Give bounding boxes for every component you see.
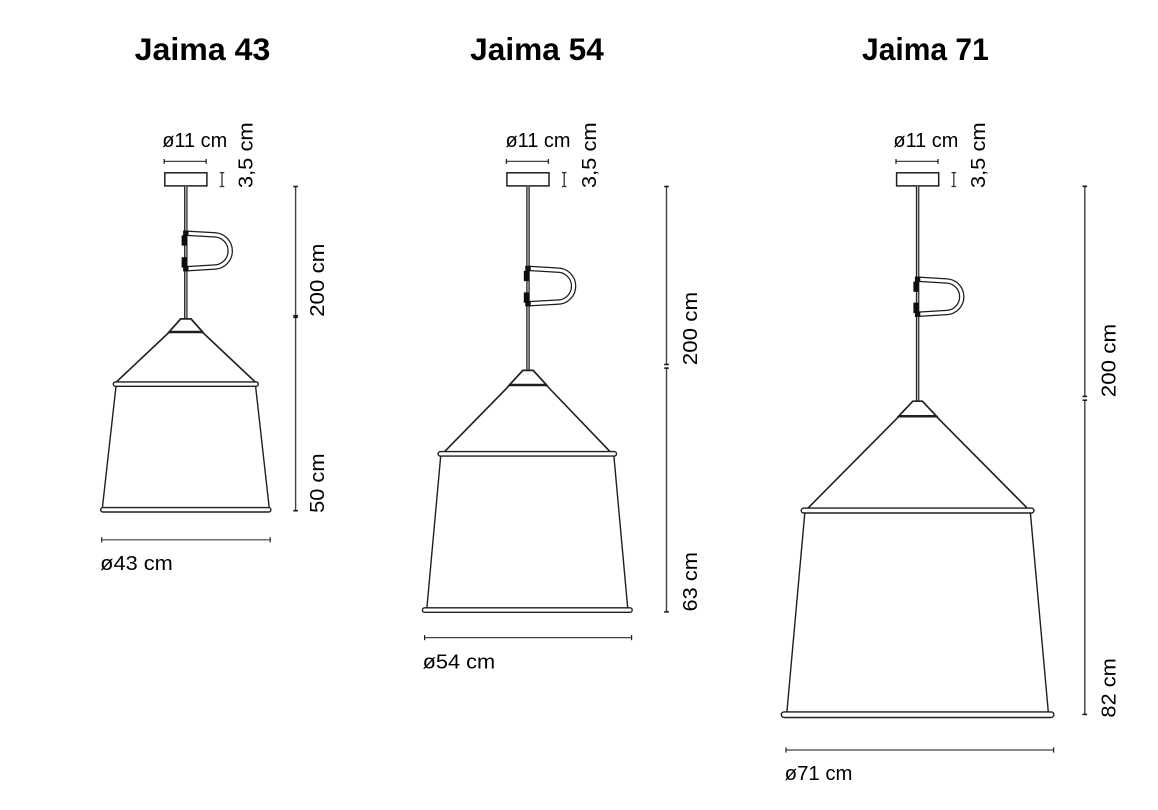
svg-text:82 cm: 82 cm [1098, 658, 1120, 717]
svg-text:3,5 cm: 3,5 cm [235, 122, 257, 188]
svg-text:ø43 cm: ø43 cm [100, 553, 173, 575]
svg-text:ø71 cm: ø71 cm [785, 763, 853, 785]
svg-text:200 cm: 200 cm [1098, 324, 1120, 397]
svg-text:Jaima 43: Jaima 43 [135, 31, 271, 67]
svg-text:3,5 cm: 3,5 cm [968, 122, 990, 188]
svg-text:ø54 cm: ø54 cm [423, 652, 496, 674]
svg-text:3,5 cm: 3,5 cm [579, 122, 601, 188]
svg-text:Jaima 71: Jaima 71 [862, 31, 989, 67]
svg-text:200 cm: 200 cm [307, 244, 329, 317]
svg-text:Jaima 54: Jaima 54 [470, 31, 604, 67]
svg-text:200 cm: 200 cm [680, 292, 702, 365]
svg-text:63 cm: 63 cm [680, 552, 702, 611]
svg-text:ø11 cm: ø11 cm [506, 130, 571, 152]
svg-text:ø11 cm: ø11 cm [893, 130, 958, 152]
svg-text:50 cm: 50 cm [307, 454, 329, 513]
svg-text:ø11 cm: ø11 cm [162, 130, 227, 152]
